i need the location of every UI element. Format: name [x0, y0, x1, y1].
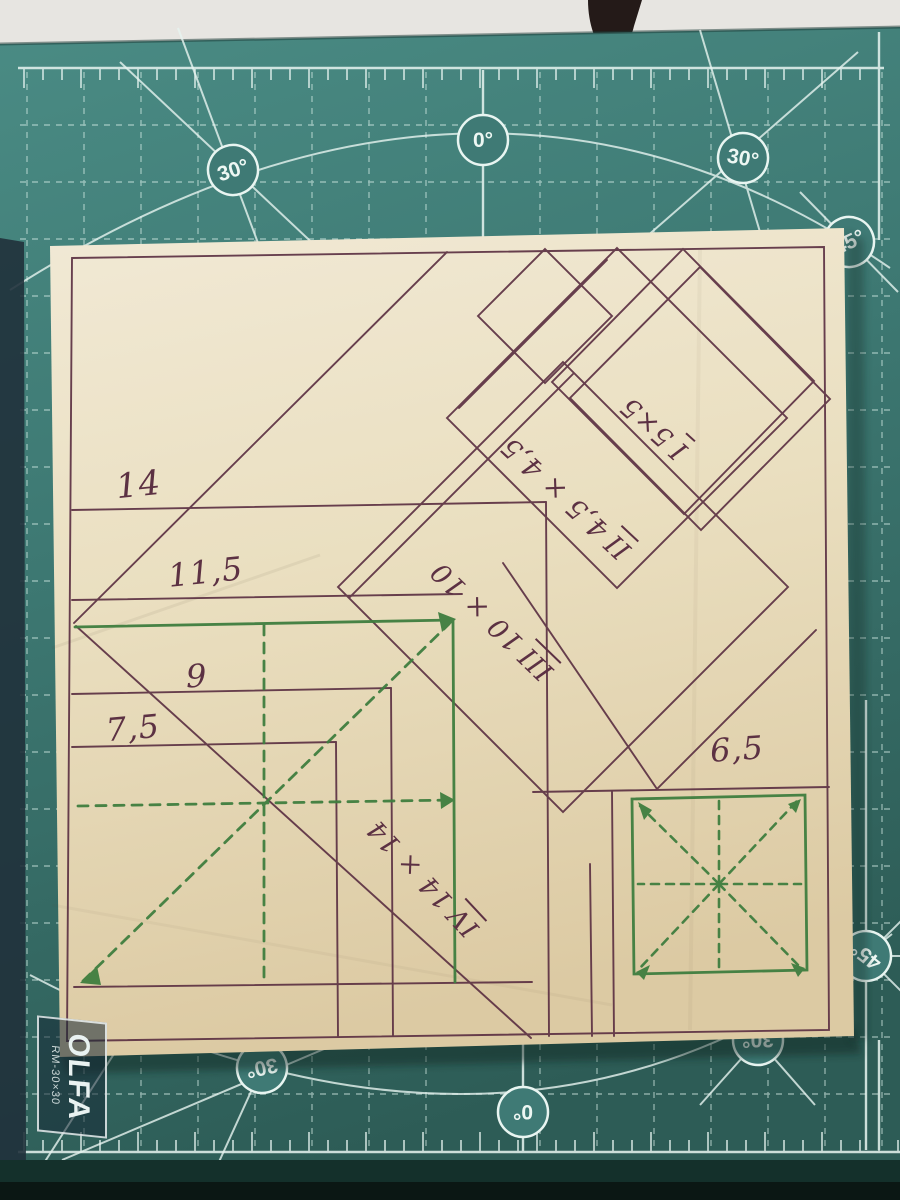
- label-9: 9: [185, 660, 207, 693]
- svg-text:0°: 0°: [513, 1100, 533, 1123]
- olfa-logo: OLFA RM-30×30: [37, 1015, 107, 1138]
- label-6-5: 6,5: [709, 731, 765, 767]
- label-11-5: 11,5: [167, 552, 245, 592]
- mat-bottom-edge: [0, 1182, 900, 1200]
- photo-of-pattern-on-cutting-mat: 0° 30° 30° 45° 30° 0° 30° 45°: [0, 0, 900, 1200]
- label-14: 14: [114, 466, 163, 505]
- olfa-brand-text: OLFA: [61, 1032, 95, 1124]
- angle-circle-0-bottom: 0°: [498, 1087, 548, 1137]
- svg-text:0°: 0°: [473, 129, 493, 152]
- mat-left-edge: [0, 238, 26, 1200]
- olfa-model-text: RM-30×30: [49, 1045, 61, 1106]
- label-7-5: 7,5: [105, 710, 161, 747]
- angle-circle-0-top: 0°: [458, 115, 508, 165]
